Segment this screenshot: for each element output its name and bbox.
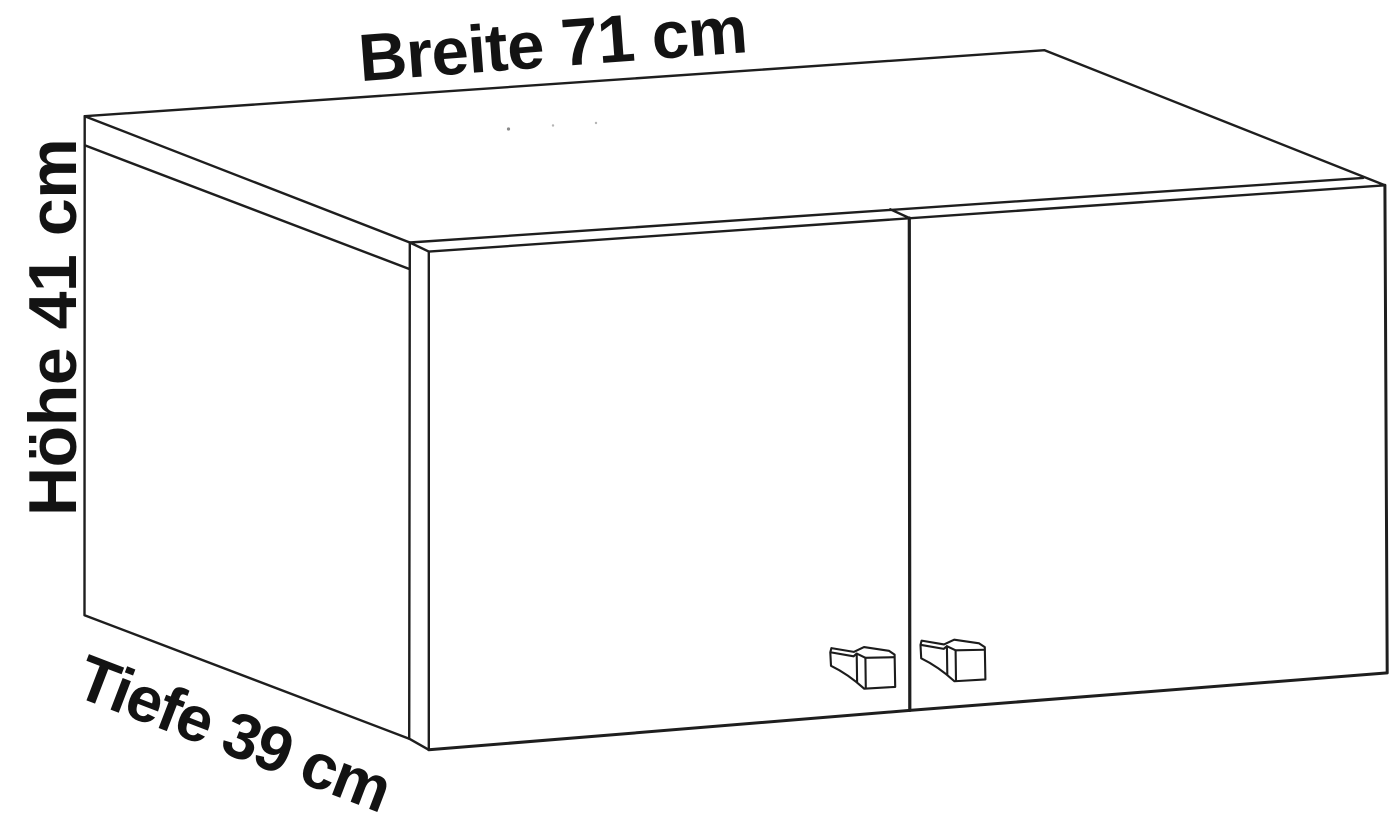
svg-text:Breite 71 cm: Breite 71 cm (356, 0, 749, 96)
svg-text:Höhe 41 cm: Höhe 41 cm (15, 139, 91, 516)
svg-text:Tiefe 39 cm: Tiefe 39 cm (67, 641, 400, 826)
